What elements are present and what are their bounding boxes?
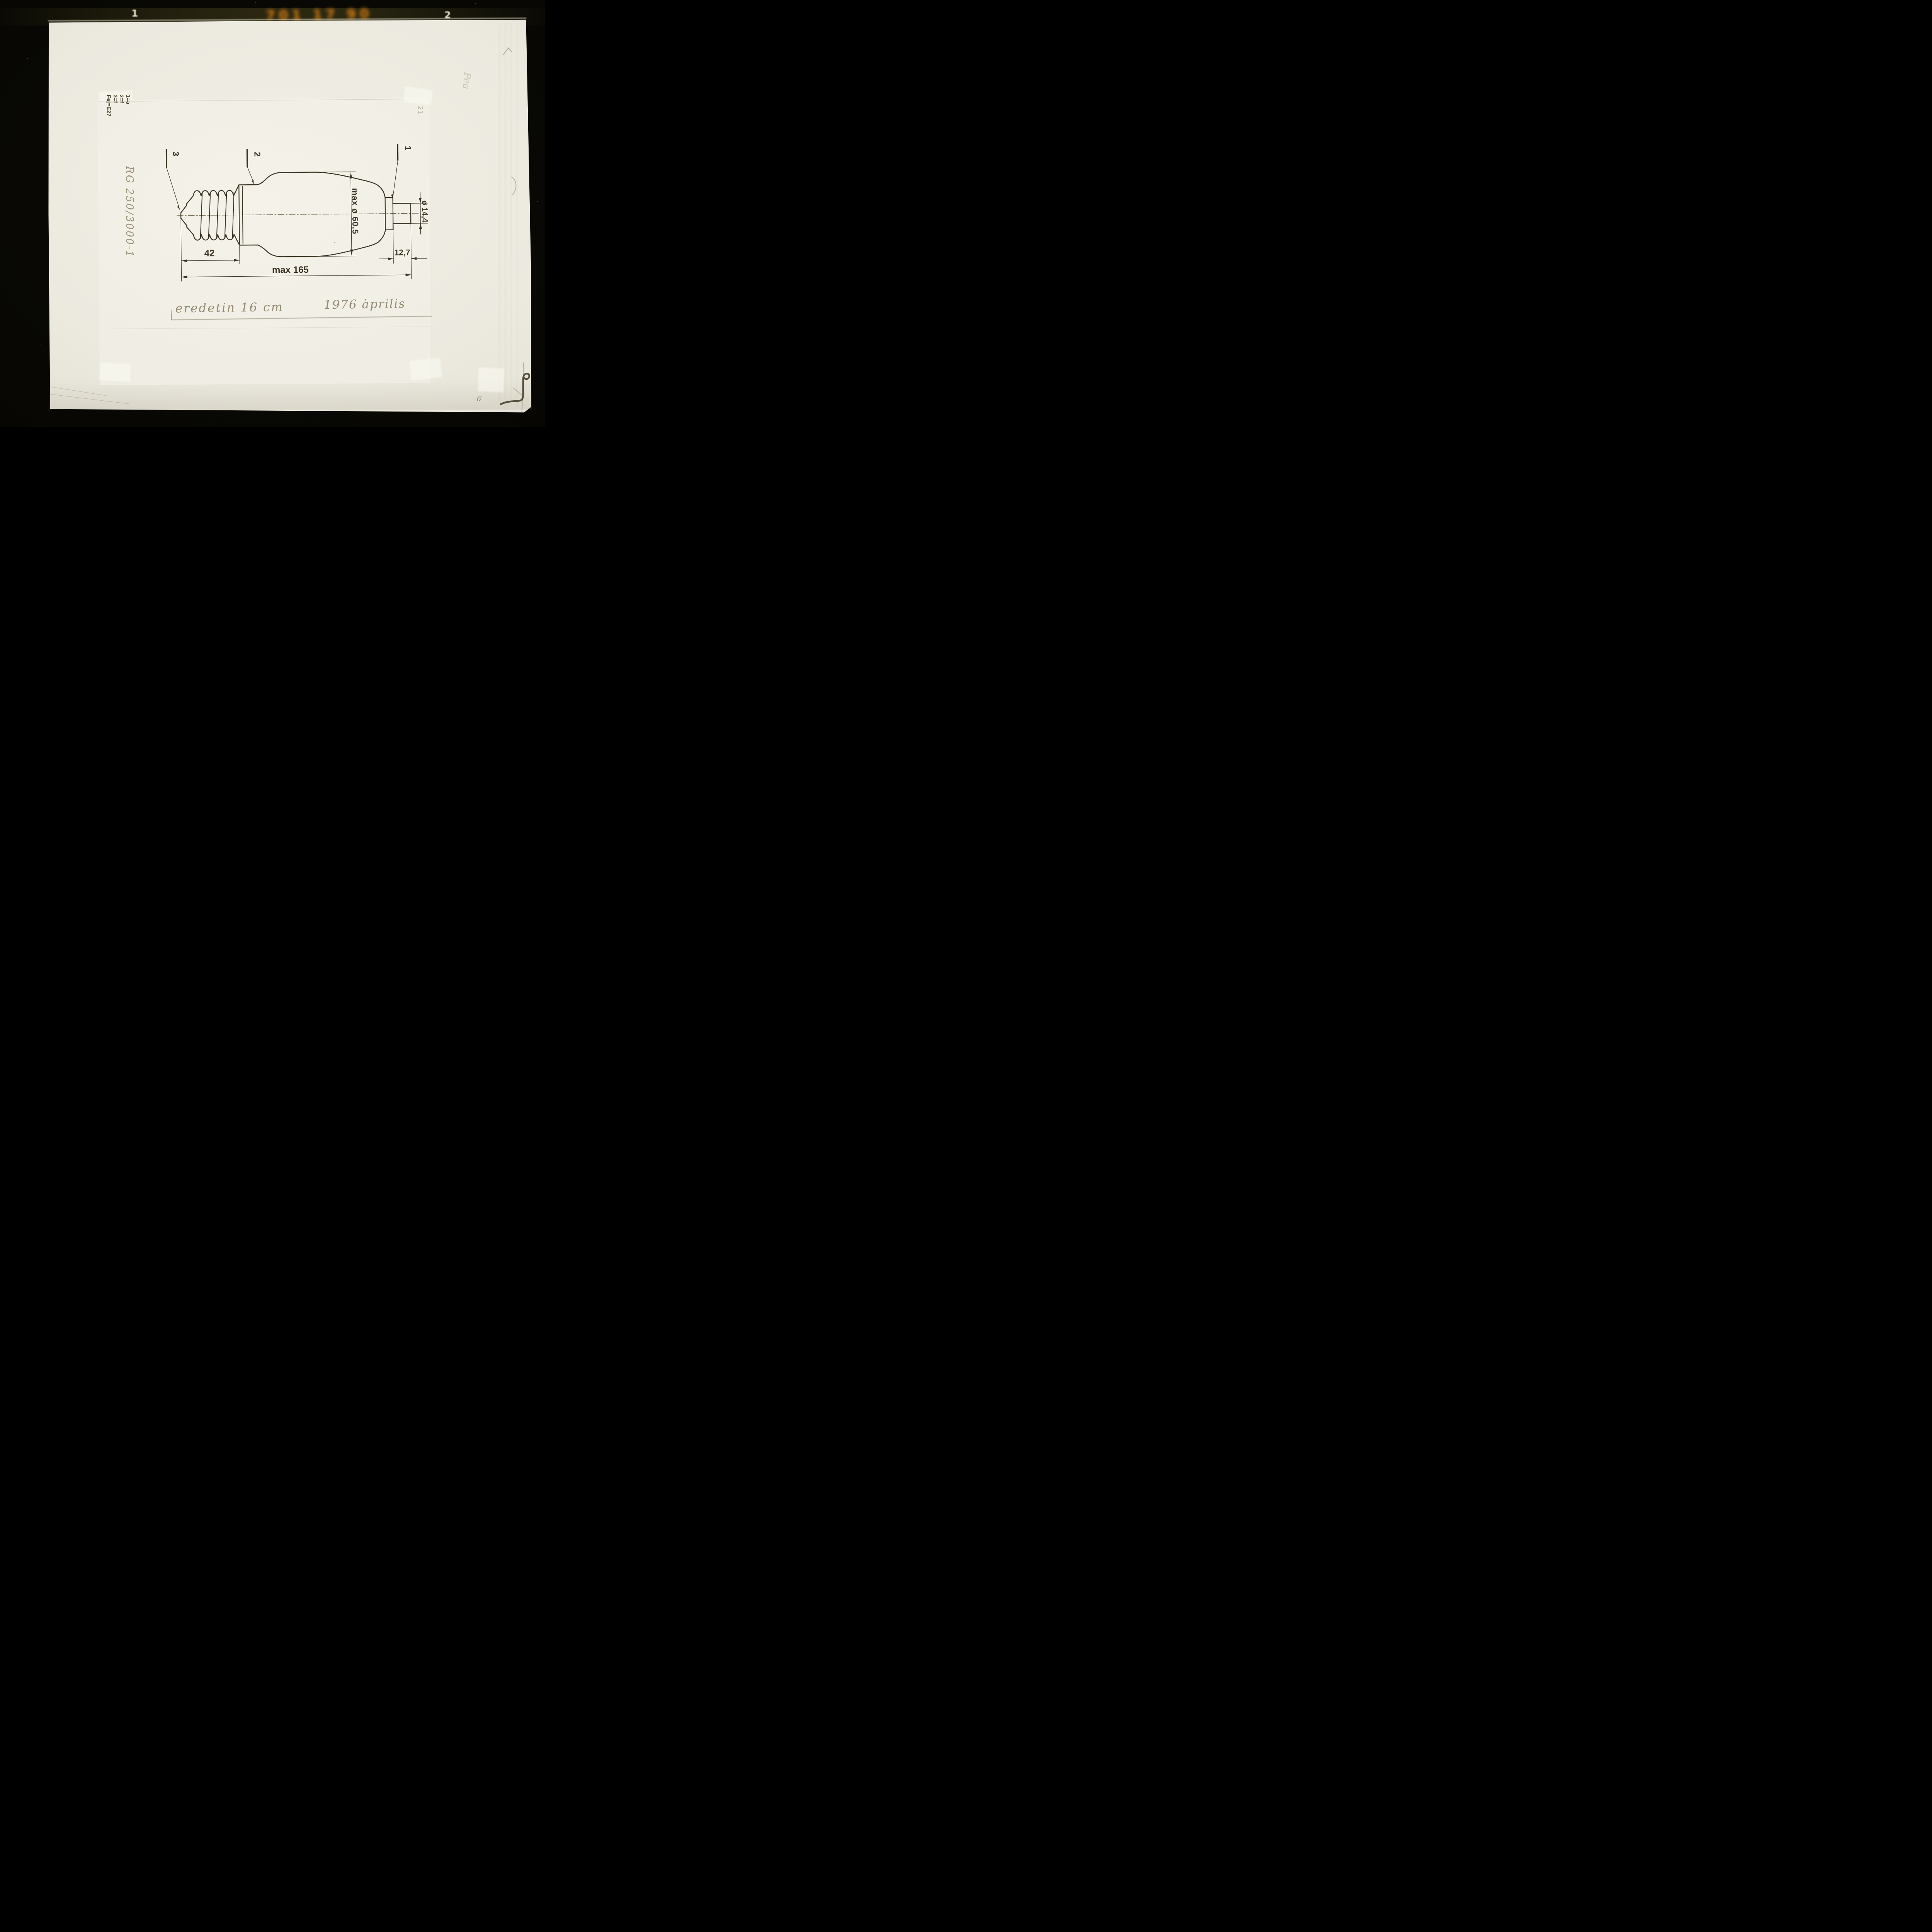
dust-speck	[255, 2, 256, 3]
dim-tip-length: 12,7	[394, 248, 410, 257]
dust-speck	[12, 201, 12, 202]
center-axis-line	[177, 213, 420, 216]
handnote-underline	[171, 316, 432, 320]
collar-inner-line	[242, 186, 243, 243]
film-frame-number-left: 1	[131, 8, 138, 19]
legend-line-1: 1=a	[125, 95, 132, 160]
legend-line-2: 2=f	[119, 95, 125, 160]
ink-dot	[107, 99, 109, 101]
part-code-handwritten: RG 250/3000-1	[120, 166, 135, 281]
tape-bottom-right	[410, 358, 442, 380]
dim-total-length: max 165	[272, 265, 309, 276]
legend-line-4: Fej=E27	[106, 95, 112, 160]
pencil-sheet-number: 21	[415, 106, 424, 121]
dim-base-length: 42	[204, 248, 215, 259]
pencil-hook-right-edge	[509, 176, 519, 196]
dust-speck	[41, 344, 41, 345]
paper-right-streaks	[498, 23, 519, 406]
dust-speck	[27, 58, 28, 59]
handnote-text: eredetin 16 cm	[175, 300, 284, 316]
callout-3: 3	[171, 151, 180, 156]
dust-speck	[537, 201, 538, 202]
handnote-date: 1976 àprilis	[324, 297, 406, 312]
callout-leaders	[166, 145, 398, 210]
pencil-flourish	[491, 368, 533, 410]
step-left-edge	[385, 197, 386, 230]
handwritten-note: eredetin 16 cm 1976 àprilis	[171, 296, 438, 325]
handnote-tick	[171, 310, 172, 320]
dust-speck	[475, 3, 476, 4]
film-photo-of-technical-drawing: 701 17 90 1 2 1=a 2=f 3=f Fej=E27 RG 250…	[0, 0, 545, 427]
dim-tip-diameter: ø 14,4	[420, 201, 429, 223]
callout-1: 1	[403, 146, 413, 150]
dim-max-diameter: max ø 60,5	[350, 188, 360, 234]
lamp-technical-drawing: max ø 60,5 ø 14,4 42 12,7 max 165 3 2 1	[162, 141, 433, 285]
pencil-hook-top-right	[502, 46, 514, 56]
tape-bottom-left	[99, 362, 131, 382]
callout-2: 2	[252, 152, 262, 156]
legend-block: 1=a 2=f 3=f Fej=E27	[106, 95, 131, 160]
lamp-outline	[180, 171, 411, 258]
collar-left-edge	[239, 185, 239, 245]
legend-line-3: 3=f	[112, 95, 119, 160]
